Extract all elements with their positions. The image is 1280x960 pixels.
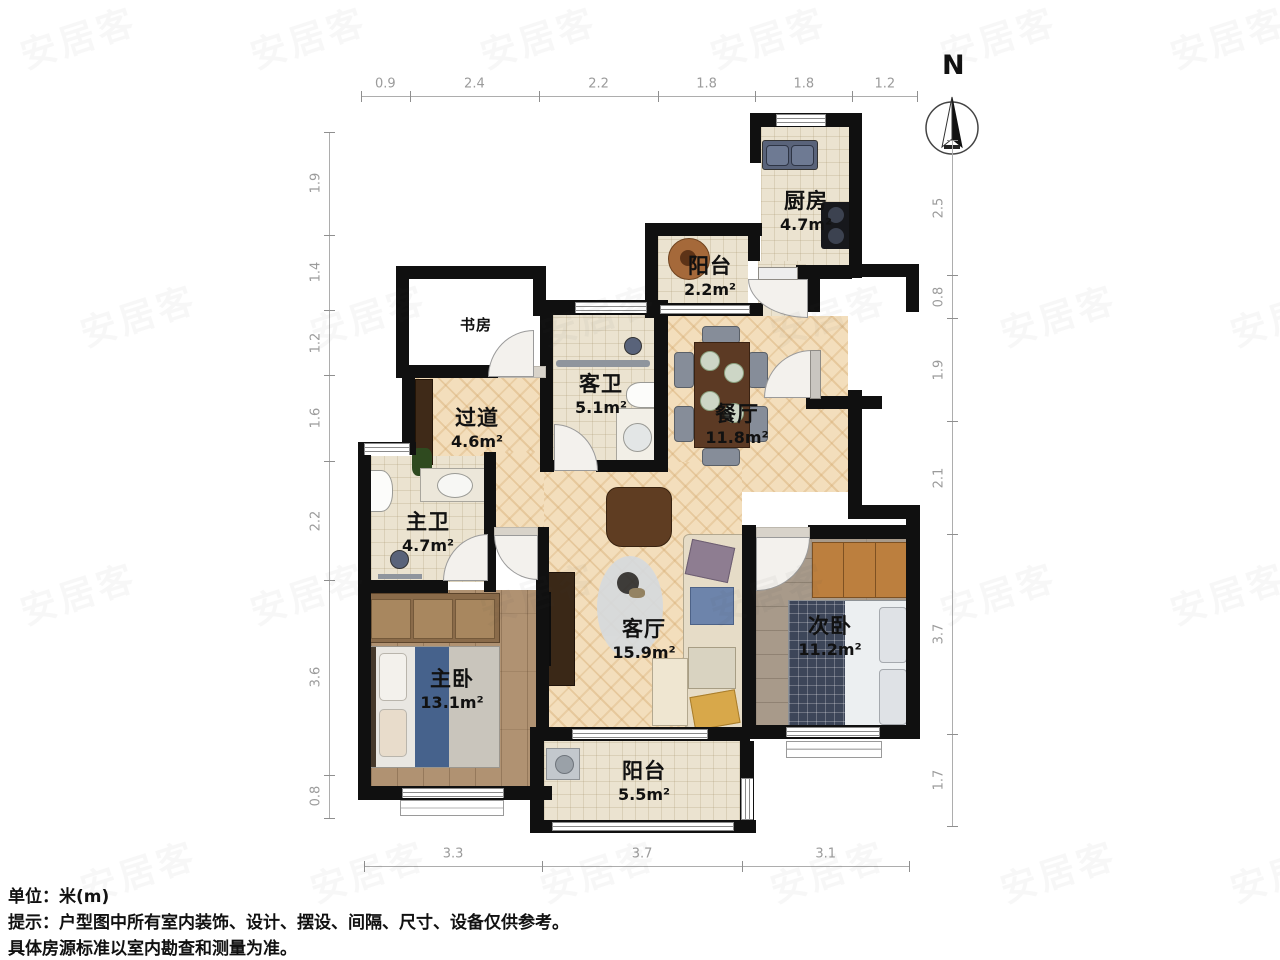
watermark-text: 安居客: [243, 0, 373, 79]
watermark-text: 安居客: [703, 0, 833, 79]
dimension-value: 3.3: [443, 847, 464, 862]
dimension-value: 1.7: [932, 770, 947, 791]
dimension-value: 2.1: [932, 467, 947, 488]
balcony-bottom-window: [552, 822, 734, 831]
sofa: [683, 534, 747, 728]
dimension-value: 1.2: [309, 332, 324, 353]
armchair: [606, 487, 672, 547]
kitchen-sink: [762, 140, 818, 170]
north-label: N: [942, 50, 965, 81]
sofa-ottoman: [652, 658, 688, 726]
master-window: [402, 788, 504, 798]
watermark-text: 安居客: [243, 549, 373, 636]
watermark-text: 安居客: [473, 0, 603, 79]
dimension-value: 3.7: [932, 624, 947, 645]
dimension-value: 3.7: [632, 847, 653, 862]
room-label-dining: 餐厅11.8m²: [705, 398, 768, 447]
second-wardrobe: [812, 542, 910, 598]
master-bath-window: [364, 443, 410, 455]
dimension-value: 1.2: [874, 77, 895, 92]
master-door-arc: [494, 535, 538, 580]
watermark-text: 安居客: [1223, 827, 1280, 914]
kitchen-window: [776, 114, 826, 126]
dimension-value: 1.8: [793, 77, 814, 92]
living-balcony-slider: [572, 729, 708, 739]
room-label-balcony-bottom: 阳台5.5m²: [618, 755, 670, 804]
room-label-kitchen: 厨房4.7m²: [780, 185, 832, 234]
dimension-value: 1.4: [309, 262, 324, 283]
dining-chair: [674, 352, 694, 388]
room-label-master-bedroom: 主卧13.1m²: [420, 663, 483, 712]
tv-cabinet: [548, 572, 575, 686]
master-window-bay: [400, 800, 504, 816]
hall-floor: [496, 452, 544, 528]
guest-bath-window: [575, 302, 647, 313]
shower-rod: [556, 360, 650, 367]
master-wardrobe: [366, 593, 500, 643]
watermark-text: 安居客: [13, 549, 143, 636]
dimension-value: 0.8: [309, 786, 324, 807]
room-label-master-bath: 主卫4.7m²: [402, 506, 454, 555]
tip-line-1: 提示：户型图中所有室内装饰、设计、摆设、间隔、尺寸、设备仅供参考。: [8, 908, 569, 933]
dimension-value: 1.8: [696, 77, 717, 92]
dining-chair: [748, 352, 768, 388]
tip-line-2: 具体房源标准以室内勘查和测量为准。: [8, 934, 297, 959]
dimension-value: 2.2: [588, 77, 609, 92]
balcony-side-window: [741, 778, 753, 820]
unit-note: 单位：米(m): [8, 882, 109, 907]
dimension-value: 0.8: [932, 286, 947, 307]
watermark-text: 安居客: [13, 0, 143, 79]
dimension-value: 1.9: [932, 359, 947, 380]
dimension-value: 2.2: [309, 510, 324, 531]
kitchen-door-leaf: [758, 267, 798, 280]
watermark-text: 安居客: [1163, 0, 1280, 79]
watermark-text: 安居客: [1223, 271, 1280, 358]
second-bedroom-window-bay: [786, 741, 882, 758]
balcony-top-slider: [660, 305, 750, 314]
floorplan-canvas: 厨房4.7m² 阳台2.2m² 书房 客卫5.1m² 过道4.6m² 餐厅11.…: [0, 0, 1280, 960]
dimension-value: 1.9: [309, 173, 324, 194]
shower-head-icon: [624, 337, 642, 355]
second-bedroom-window: [786, 727, 880, 737]
entry-door-leaf: [810, 350, 821, 399]
bath-vanity: [420, 468, 486, 502]
dimension-value: 0.9: [375, 77, 396, 92]
watermark-text: 安居客: [73, 271, 203, 358]
washing-machine: [546, 748, 580, 780]
room-label-corridor: 过道4.6m²: [451, 402, 503, 451]
watermark-text: 安居客: [1163, 549, 1280, 636]
watermark-text: 安居客: [533, 827, 663, 914]
dimension-value: 3.1: [815, 847, 836, 862]
room-label-study: 书房: [460, 314, 492, 335]
room-label-guest-bath: 客卫5.1m²: [575, 368, 627, 417]
towel-rack: [378, 574, 422, 579]
dimension-value: 2.4: [464, 77, 485, 92]
dining-chair: [674, 406, 694, 442]
dimension-value: 2.5: [932, 197, 947, 218]
dimension-value: 3.6: [309, 667, 324, 688]
dining-chair: [702, 448, 740, 466]
watermark-text: 安居客: [763, 827, 893, 914]
watermark-text: 安居客: [993, 827, 1123, 914]
room-label-living: 客厅15.9m²: [612, 613, 675, 662]
watermark-text: 安居客: [303, 827, 433, 914]
dimension-value: 1.6: [309, 408, 324, 429]
room-label-second-bedroom: 次卧11.2m²: [798, 610, 861, 659]
room-label-balcony-top: 阳台2.2m²: [684, 250, 736, 299]
watermark-text: 安居客: [993, 271, 1123, 358]
